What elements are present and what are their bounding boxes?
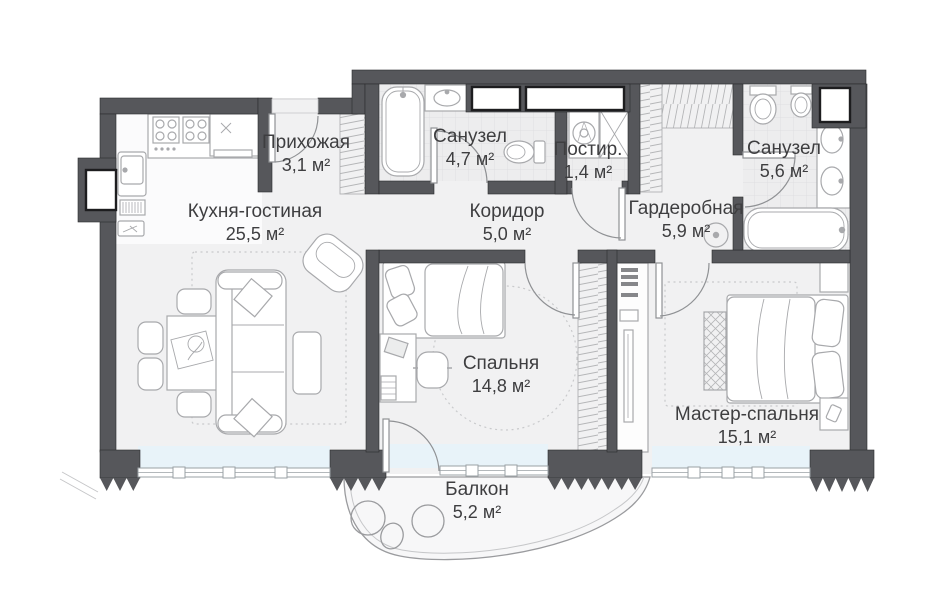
wall-corridor-bedroom [379,250,525,263]
wall-top-left [100,98,258,114]
bathtub-icon [382,87,424,176]
wall-bath1-left [365,84,379,194]
toilet-icon [504,141,545,163]
chair-icon [138,322,163,354]
floor-plan: Прихожая 3,1 м² Кухня-гостиная 25,5 м² С… [0,0,926,606]
mirror-icon [624,330,633,422]
bathtub-2-icon [744,208,848,252]
master-window-glass [652,446,810,470]
shaft-box [820,88,850,122]
desk-chair-icon [417,352,448,388]
wall-toilet-icon [750,86,776,124]
chair-icon [138,358,163,390]
wall-master-top [712,250,850,263]
balcony-area [344,477,650,560]
shaft-box [472,87,520,110]
coffee-table-icon [293,332,321,394]
sawtooth [100,478,140,491]
entry-closet-rack [340,114,366,194]
neighbor-balcony-line [60,472,98,499]
bedroom-bed-icon [383,262,505,338]
wall-right [850,84,867,456]
sawtooth [810,478,874,492]
bedroom-closet-rack [578,263,607,451]
washing-machine-icon [569,110,599,158]
bedroom-window-glass [386,444,548,468]
pillow-icon [811,298,844,347]
pillow-icon [811,350,844,399]
living-window-glass [138,446,330,470]
bench-icon [704,312,726,390]
laundry-box-icon [600,110,629,158]
floor-plan-drawing [0,0,926,606]
chair-icon [177,289,211,314]
blanket [425,264,503,336]
kitchen-counter-icon [148,114,262,158]
wall-closet-divider [607,250,617,452]
double-sink-icon [817,116,850,208]
shaft-box [86,170,116,210]
blanket [727,297,815,401]
wardrobe-rack [640,84,662,192]
wall-top [352,70,866,84]
shaft-box [526,87,624,110]
wall-wardrobe-bath2 [733,84,743,155]
chair-icon [177,392,211,417]
wall-living-bedroom [366,250,379,452]
sofa-icon [216,270,286,437]
wardrobe-rack [662,84,733,128]
bidet-icon [791,86,812,117]
master-closet-items [617,263,648,452]
vanity-sink-icon [425,85,470,111]
nightstand-icon [820,262,848,292]
